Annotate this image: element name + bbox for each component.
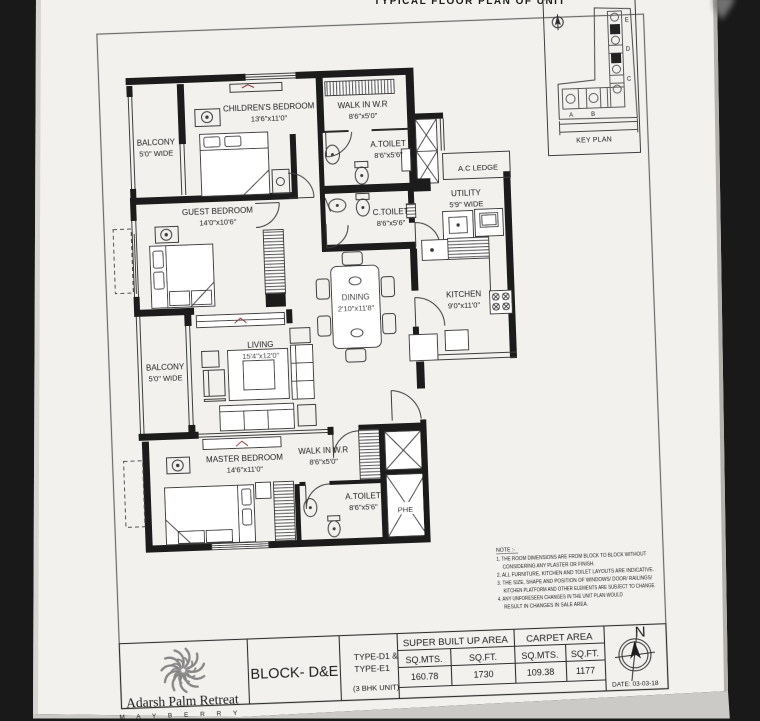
svg-text:BLOCK- D&E: BLOCK- D&E [250,663,339,683]
svg-text:8'6"x5'0": 8'6"x5'0" [309,457,338,467]
svg-text:WALK IN W.R: WALK IN W.R [298,445,348,456]
svg-text:8'6"x5'6": 8'6"x5'6" [374,150,403,160]
svg-text:E: E [625,18,629,24]
svg-text:UTILITY: UTILITY [451,188,482,198]
svg-text:5'0" WIDE: 5'0" WIDE [148,373,182,383]
svg-text:13'6"x11'0": 13'6"x11'0" [251,113,288,123]
svg-text:2'10"x11'8": 2'10"x11'8" [338,303,375,313]
svg-text:NOTE :-: NOTE :- [496,547,515,554]
svg-text:TYPE-D1 &: TYPE-D1 & [354,651,399,663]
svg-text:SQ.FT.: SQ.FT. [469,652,497,663]
svg-text:SQ.MTS.: SQ.MTS. [521,650,558,661]
svg-text:5'0" WIDE: 5'0" WIDE [139,148,173,158]
svg-text:14'0"x10'6": 14'0"x10'6" [199,217,237,227]
svg-text:TYPICAL FLOOR PLAN OF UNIT: TYPICAL FLOOR PLAN OF UNIT [374,0,566,7]
svg-text:A.C LEDGE: A.C LEDGE [458,163,498,173]
svg-text:KEY PLAN: KEY PLAN [576,136,612,144]
svg-text:TYPE-E1: TYPE-E1 [354,663,390,674]
svg-text:8'6"x5'6": 8'6"x5'6" [349,502,378,512]
svg-text:KITCHEN: KITCHEN [446,289,482,299]
svg-text:A.TOILET: A.TOILET [370,139,406,149]
svg-text:SQ.FT.: SQ.FT. [571,648,599,659]
svg-text:SQ.MTS.: SQ.MTS. [405,654,442,665]
svg-text:A.TOILET: A.TOILET [345,491,381,501]
svg-text:1730: 1730 [473,669,493,680]
svg-text:160.78: 160.78 [411,671,439,682]
svg-text:109.38: 109.38 [527,667,555,678]
svg-text:15'4"x12'0": 15'4"x12'0" [242,351,280,361]
svg-text:WALK IN W.R: WALK IN W.R [338,100,388,111]
svg-text:DINING: DINING [342,292,370,302]
svg-text:B: B [591,112,595,118]
svg-text:BALCONY: BALCONY [146,362,185,372]
svg-text:14'6"x11'0": 14'6"x11'0" [227,464,264,474]
svg-text:C.TOILET: C.TOILET [373,207,409,217]
svg-text:(3 BHK UNIT): (3 BHK UNIT) [353,682,400,693]
svg-text:8'6"x5'0": 8'6"x5'0" [349,111,378,121]
svg-text:8'6"x5'6": 8'6"x5'6" [377,218,406,228]
svg-text:5'9" WIDE: 5'9" WIDE [449,199,483,209]
svg-text:1177: 1177 [576,665,596,676]
svg-text:PHE: PHE [398,505,414,515]
svg-text:9'0"x11'0": 9'0"x11'0" [448,300,481,310]
svg-text:A: A [569,113,573,119]
svg-text:BALCONY: BALCONY [137,137,176,147]
svg-text:LIVING: LIVING [247,340,274,350]
